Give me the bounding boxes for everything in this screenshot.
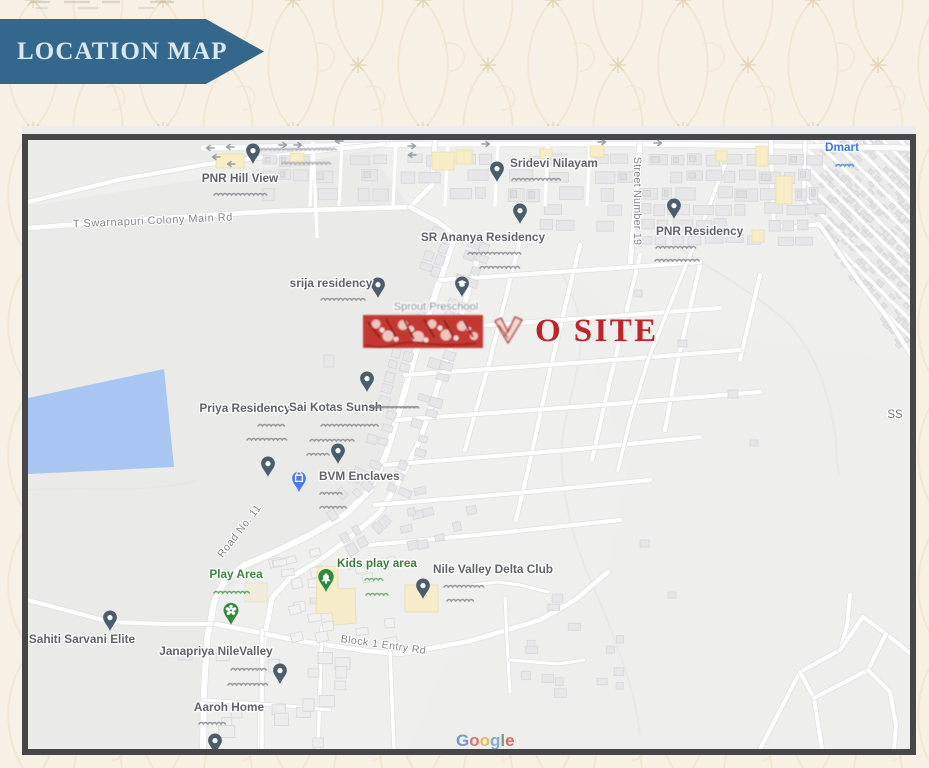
- svg-text:Priya Residency: Priya Residency: [199, 401, 291, 415]
- svg-text:Play Area: Play Area: [209, 567, 263, 581]
- svg-text:Nile Valley Delta Club: Nile Valley Delta Club: [433, 562, 553, 576]
- svg-text:Sai Kotas Sunsh: Sai Kotas Sunsh: [289, 400, 382, 414]
- svg-text:O SITE: O SITE: [535, 313, 659, 349]
- svg-text:Sahiti Sarvani Elite: Sahiti Sarvani Elite: [29, 632, 136, 646]
- svg-text:srija residency: srija residency: [290, 276, 373, 290]
- svg-text:SS: SS: [887, 409, 903, 421]
- svg-text:BVM Enclaves: BVM Enclaves: [319, 469, 400, 483]
- svg-text:PNR Hill View: PNR Hill View: [202, 171, 279, 185]
- svg-text:PNR Residency: PNR Residency: [656, 224, 744, 238]
- svg-text:Sprout Preschool: Sprout Preschool: [394, 301, 478, 313]
- svg-text:SR Ananya Residency: SR Ananya Residency: [421, 230, 546, 244]
- svg-text:Google: Google: [456, 731, 515, 749]
- svg-text:Street Number 19: Street Number 19: [631, 157, 643, 245]
- svg-text:Aaroh Home: Aaroh Home: [194, 700, 265, 714]
- svg-text:Janapriya NileValley: Janapriya NileValley: [159, 644, 273, 658]
- svg-text:Kids play area: Kids play area: [337, 556, 417, 570]
- svg-text:Dmart: Dmart: [825, 140, 859, 154]
- svg-text:Sridevi Nilayam: Sridevi Nilayam: [510, 156, 598, 170]
